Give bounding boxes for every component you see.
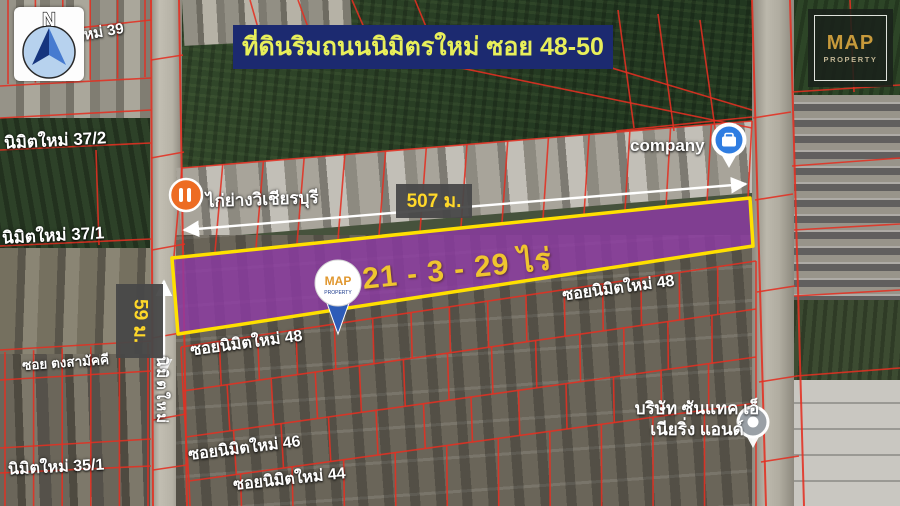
compass-icon: N (14, 7, 84, 81)
width-measurement-badge: 507 ม. (396, 184, 472, 218)
pin-property-text: PROPERTY (324, 290, 352, 296)
logo-property-text: PROPERTY (823, 55, 877, 64)
company-name-line2: เนียริ่ง แอนด์ (602, 419, 792, 440)
compass-north-letter: N (42, 10, 56, 31)
pin-map-text: MAP (325, 274, 352, 288)
title-banner: ที่ดินริมถนนนิมิตรใหม่ ซอย 48-50 (233, 25, 613, 69)
street-label-nimit-37-2: นิมิตใหม่ 37/2 (3, 124, 107, 156)
restaurant-place-label: ไก่ย่างวิเชียรบุรี (206, 184, 319, 215)
logo-frame: MAP PROPERTY (814, 15, 887, 81)
map-property-pin-icon: MAP PROPERTY (315, 260, 361, 334)
company-name-label: บริษัท ซันแทค เอ็ เนียริ่ง แอนด์ (602, 398, 792, 441)
company-pin-icon (712, 123, 747, 169)
width-measurement-text: 507 ม. (407, 186, 462, 216)
logo-map-text: MAP (827, 33, 874, 53)
company-name-line1: บริษัท ซันแทค เอ็ (602, 398, 792, 419)
listing-map-image: MAP PROPERTY 507 ม. 59 (0, 0, 900, 506)
street-label-nimit-35-1: นิมิตใหม่ 35/1 (7, 452, 105, 482)
depth-measurement-text: 59 ม. (125, 299, 155, 343)
street-label-nimit-mai-road: นิมิตใหม่ (149, 356, 173, 476)
map-property-logo: MAP PROPERTY (808, 9, 893, 87)
company-place-label: company (630, 136, 705, 156)
title-banner-text: ที่ดินริมถนนนิมิตรใหม่ ซอย 48-50 (242, 27, 604, 67)
depth-measurement-badge: 59 ม. (116, 284, 163, 358)
restaurant-pin-icon (170, 179, 202, 211)
street-label-nimit-37-1: นิมิตใหม่ 37/1 (1, 219, 105, 251)
